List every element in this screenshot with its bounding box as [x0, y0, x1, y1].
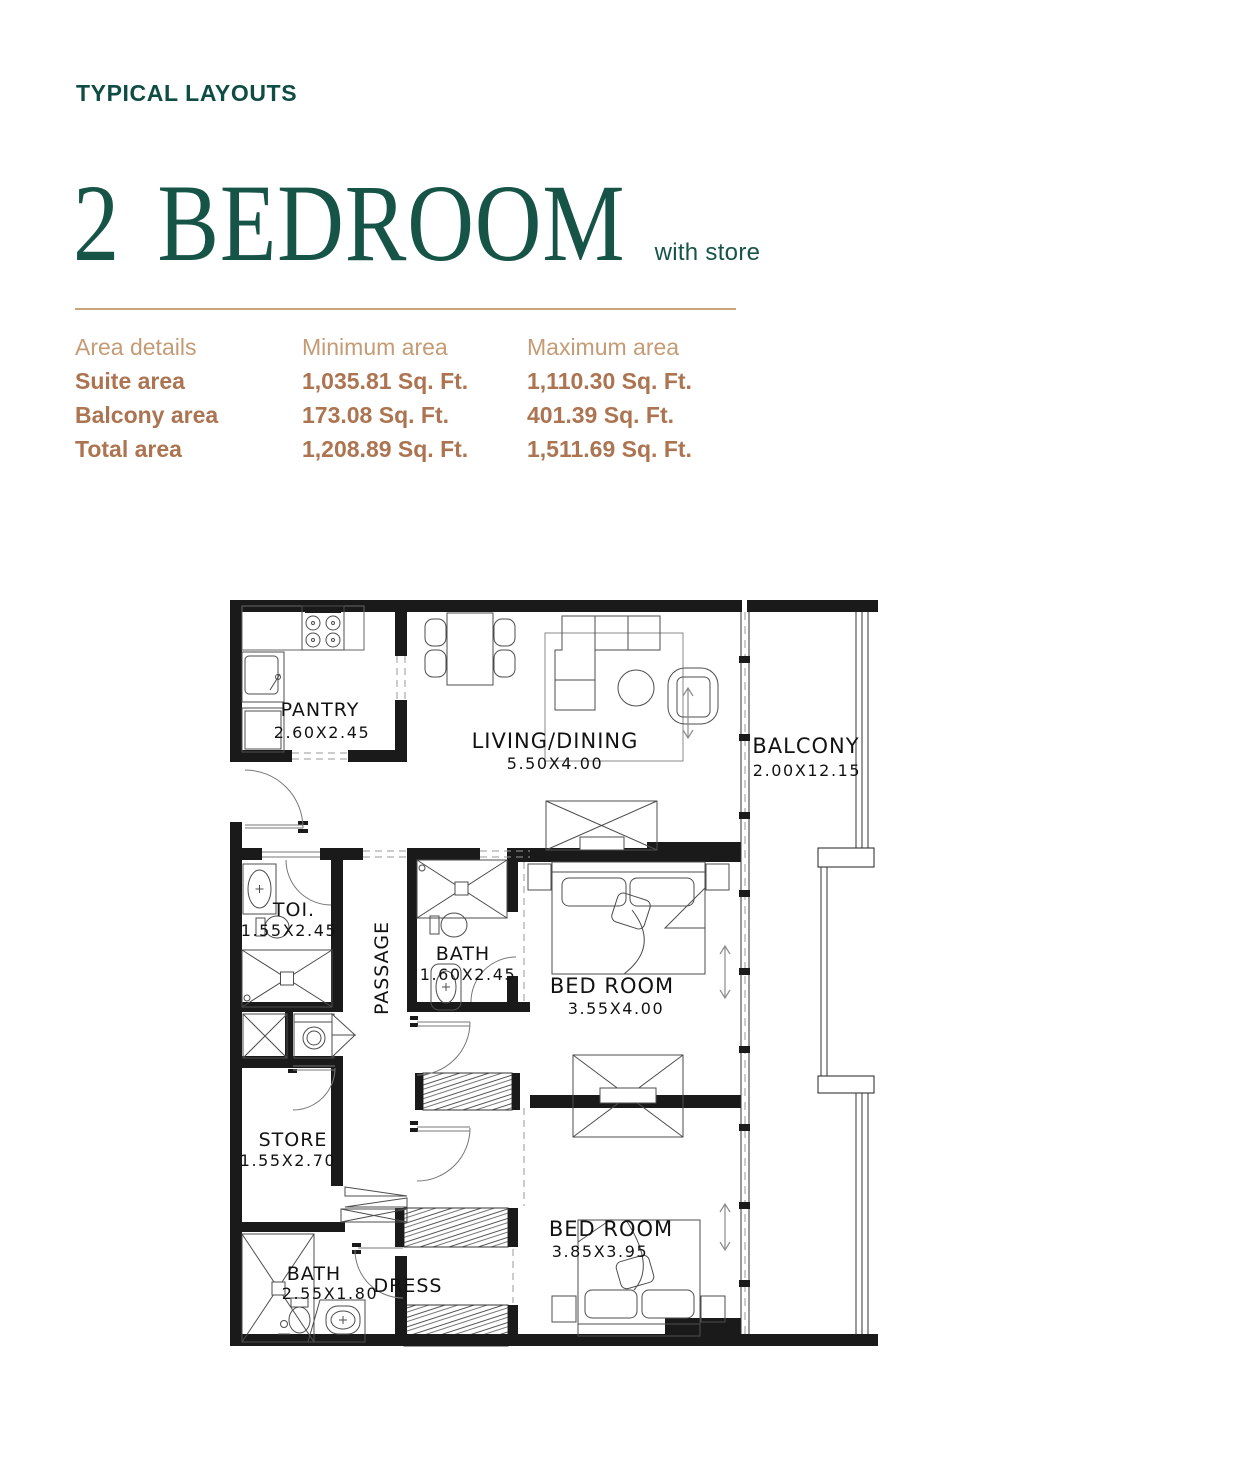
chair-icon	[494, 650, 515, 677]
pillow-icon	[642, 1290, 694, 1318]
laundry-fixtures	[243, 1014, 355, 1058]
floor-plan: PANTRY 2.60X2.45 LIVING/DINING 5.50X4.00…	[228, 598, 880, 1348]
col-minimum-area: Minimum area	[302, 334, 527, 361]
bed-icon	[552, 862, 705, 974]
page-eyebrow: TYPICAL LAYOUTS	[76, 80, 297, 107]
table-row-suite: Suite area 1,035.81 Sq. Ft. 1,110.30 Sq.…	[75, 364, 755, 398]
row-max: 401.39 Sq. Ft.	[527, 402, 755, 429]
label-bath3: BATH	[287, 1263, 341, 1285]
row-min: 1,208.89 Sq. Ft.	[302, 436, 527, 463]
row-max: 1,110.30 Sq. Ft.	[527, 368, 755, 395]
pillow-icon	[630, 878, 694, 906]
arrow-icon	[720, 946, 730, 998]
nightstand-icon	[706, 864, 729, 890]
page-title-row: 2 BEDROOM with store	[73, 168, 760, 278]
pillow-icon	[585, 1290, 637, 1318]
bedroom1-furniture	[528, 862, 729, 974]
dims-bedroom1: 3.55X4.00	[568, 999, 665, 1018]
label-living-dining: LIVING/DINING	[472, 729, 639, 753]
nightstand-icon	[528, 864, 551, 890]
divider-line	[75, 308, 736, 310]
brochure-page: TYPICAL LAYOUTS 2 BEDROOM with store Are…	[0, 0, 1239, 1480]
label-bath-inner: BATH	[436, 943, 490, 965]
page-title-suffix: with store	[655, 239, 761, 267]
wardrobe-passage	[423, 1073, 512, 1110]
nightstand-icon	[552, 1296, 576, 1322]
arrow-icon	[683, 688, 693, 738]
passage-south-door	[417, 1127, 470, 1181]
dining-set	[425, 613, 515, 685]
chair-icon	[425, 619, 446, 646]
col-maximum-area: Maximum area	[527, 334, 755, 361]
dining-table-icon	[447, 613, 493, 685]
glass-wall	[739, 612, 750, 1334]
label-passage: PASSAGE	[371, 921, 393, 1015]
bedroom1-door	[417, 1022, 470, 1075]
label-bedroom2: BED ROOM	[549, 1217, 673, 1241]
label-bedroom1: BED ROOM	[550, 974, 674, 998]
label-toi: TOI.	[272, 899, 315, 921]
chair-icon	[425, 650, 446, 677]
label-pantry: PANTRY	[281, 699, 360, 721]
coffee-table-icon	[618, 670, 654, 706]
bifold-door-icon	[332, 1014, 355, 1035]
row-min: 1,035.81 Sq. Ft.	[302, 368, 527, 395]
dims-living-dining: 5.50X4.00	[507, 754, 604, 773]
wardrobe-dress-top	[404, 1208, 508, 1247]
row-min: 173.08 Sq. Ft.	[302, 402, 527, 429]
table-row-total: Total area 1,208.89 Sq. Ft. 1,511.69 Sq.…	[75, 432, 755, 466]
chair-icon	[494, 619, 515, 646]
dims-balcony: 2.00X12.15	[753, 761, 861, 780]
bifold-door-icon	[332, 1035, 355, 1057]
table-row-balcony: Balcony area 173.08 Sq. Ft. 401.39 Sq. F…	[75, 398, 755, 432]
row-label: Balcony area	[75, 402, 302, 429]
row-label: Total area	[75, 436, 302, 463]
store-door	[293, 1066, 335, 1110]
label-store: STORE	[259, 1129, 328, 1151]
row-max: 1,511.69 Sq. Ft.	[527, 436, 755, 463]
dims-store: 1.55X2.70	[240, 1151, 337, 1170]
sliding-door-arrows	[683, 688, 730, 1250]
inner-bath-fixtures	[417, 860, 507, 1010]
arrow-icon	[720, 1204, 730, 1250]
col-area-details: Area details	[75, 334, 302, 361]
toilet-icon	[430, 916, 439, 934]
label-dress: DRESS	[374, 1275, 443, 1297]
page-title: 2 BEDROOM	[73, 168, 625, 278]
area-table: Area details Minimum area Maximum area S…	[75, 330, 755, 466]
washing-machine-icon	[294, 1014, 334, 1058]
living-wardrobe	[546, 801, 657, 850]
dims-bath-inner: 1.60X2.45	[420, 965, 517, 984]
row-label: Suite area	[75, 368, 302, 395]
area-table-header: Area details Minimum area Maximum area	[75, 330, 755, 364]
dims-bath3: 2.55X1.80	[282, 1284, 379, 1303]
dims-bedroom2: 3.85X3.95	[552, 1242, 649, 1261]
sofa-icon	[555, 616, 660, 710]
dims-toi: 1.55X2.45	[241, 921, 338, 940]
wardrobes-hatched	[404, 1073, 512, 1346]
dims-pantry: 2.60X2.45	[274, 723, 371, 742]
label-balcony: BALCONY	[752, 734, 859, 758]
entrance-door	[245, 770, 303, 828]
balcony-railing	[818, 612, 874, 1334]
